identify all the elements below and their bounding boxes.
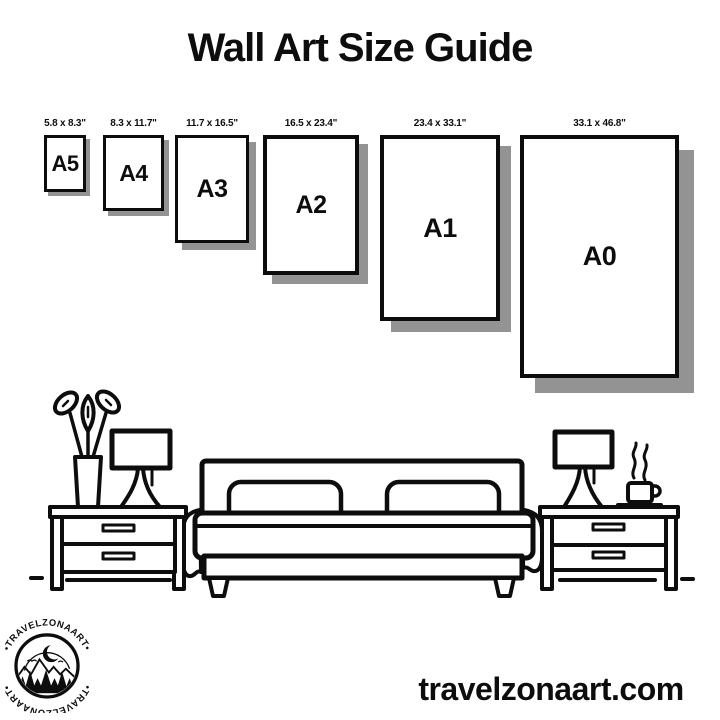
size-swatch-a5: 5.8 x 8.3" A5 bbox=[44, 117, 86, 192]
table-lamp-right bbox=[555, 432, 612, 507]
plant-stem bbox=[93, 413, 106, 457]
size-label-a4: 8.3 x 11.7" bbox=[103, 117, 164, 130]
size-swatch-a1: 23.4 x 33.1" A1 bbox=[380, 117, 500, 321]
size-code-a4: A4 bbox=[119, 160, 147, 187]
drawer-handle bbox=[593, 552, 624, 558]
drawer-handle bbox=[103, 553, 134, 559]
bed-base bbox=[204, 556, 522, 578]
table-lamp-left bbox=[112, 431, 170, 507]
lamp-base bbox=[564, 467, 602, 507]
drawer-handle bbox=[593, 524, 624, 530]
size-swatch-a2: 16.5 x 23.4" A2 bbox=[263, 117, 359, 275]
size-label-a5: 5.8 x 8.3" bbox=[44, 117, 86, 130]
steam-line bbox=[633, 443, 636, 478]
size-label-a2: 16.5 x 23.4" bbox=[263, 117, 359, 130]
bed-mattress bbox=[195, 513, 533, 558]
size-code-a2: A2 bbox=[296, 191, 327, 220]
size-code-a3: A3 bbox=[197, 175, 228, 204]
drawer-handle bbox=[103, 525, 134, 531]
size-swatch-a4: 8.3 x 11.7" A4 bbox=[103, 117, 164, 211]
size-frame-a2: A2 bbox=[263, 135, 359, 275]
lamp-shade bbox=[555, 432, 612, 467]
size-label-a1: 23.4 x 33.1" bbox=[380, 117, 500, 130]
nightstand-right bbox=[540, 507, 678, 589]
size-code-a5: A5 bbox=[51, 151, 78, 177]
bed bbox=[183, 461, 542, 596]
bed-leg-right bbox=[495, 578, 514, 596]
lamp-base bbox=[121, 468, 160, 507]
size-label-a0: 33.1 x 46.8" bbox=[520, 117, 679, 130]
website-url: travelzonaart.com bbox=[395, 671, 707, 708]
page-title: Wall Art Size Guide bbox=[0, 26, 720, 71]
size-code-a0: A0 bbox=[583, 241, 617, 272]
size-swatch-a0: 33.1 x 46.8" A0 bbox=[520, 117, 679, 378]
size-frame-a4: A4 bbox=[103, 135, 164, 211]
size-code-a1: A1 bbox=[423, 213, 457, 244]
size-swatch-a3: 11.7 x 16.5" A3 bbox=[175, 117, 249, 243]
lamp-shade bbox=[112, 431, 170, 468]
coffee-cup bbox=[618, 443, 661, 505]
bed-leg-left bbox=[209, 578, 228, 596]
size-frame-a5: A5 bbox=[44, 135, 86, 192]
nightstand-left bbox=[50, 507, 186, 589]
cup-body bbox=[628, 483, 652, 502]
plant-stem bbox=[70, 413, 82, 457]
bedroom-illustration bbox=[0, 380, 720, 605]
size-frame-a3: A3 bbox=[175, 135, 249, 243]
brand-logo: •TRAVELZONAART• •TRAVELZONAART• bbox=[0, 617, 94, 713]
size-label-a3: 11.7 x 16.5" bbox=[175, 117, 249, 130]
size-frame-a0: A0 bbox=[520, 135, 679, 378]
plant-vase bbox=[75, 457, 101, 507]
size-frame-a1: A1 bbox=[380, 135, 500, 321]
steam-line bbox=[644, 445, 647, 480]
